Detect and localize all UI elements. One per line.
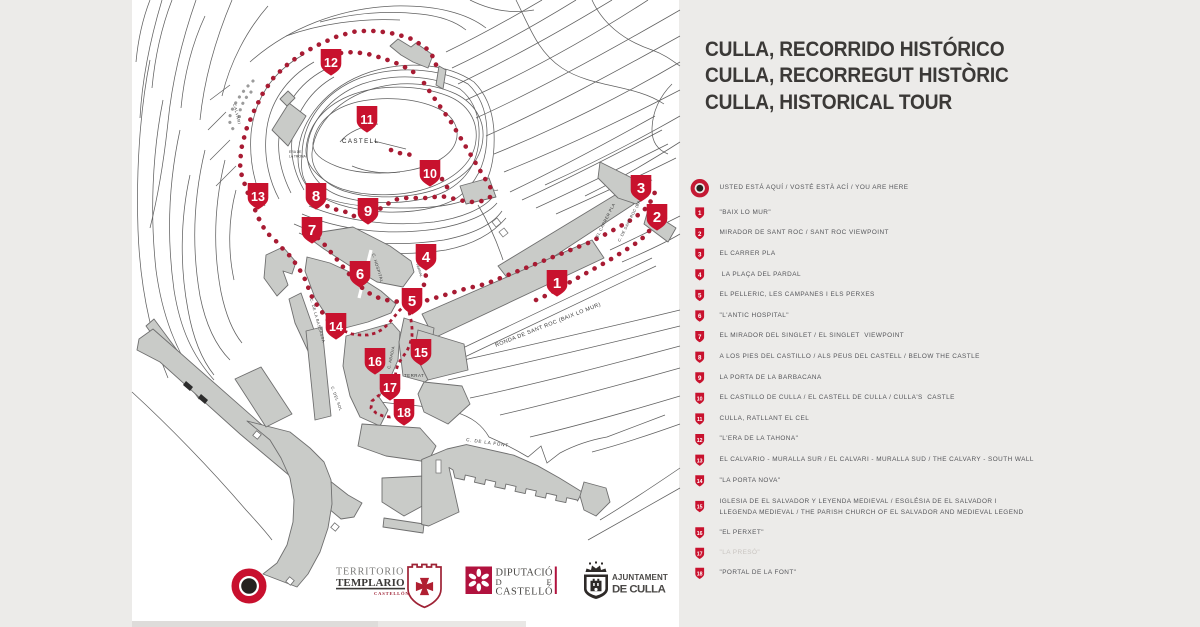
svg-text:17: 17 xyxy=(383,381,397,395)
svg-text:1: 1 xyxy=(698,210,702,217)
svg-text:7: 7 xyxy=(698,334,702,341)
svg-text:11: 11 xyxy=(360,113,373,127)
svg-text:13: 13 xyxy=(697,458,703,464)
svg-text:16: 16 xyxy=(697,531,703,537)
svg-text:3: 3 xyxy=(698,251,702,258)
svg-text:TEMPLARIO: TEMPLARIO xyxy=(336,577,405,589)
svg-text:18: 18 xyxy=(397,406,411,420)
svg-text:6: 6 xyxy=(698,313,702,320)
svg-text:6: 6 xyxy=(356,266,364,283)
svg-text:CASTELLÓN: CASTELLÓN xyxy=(374,591,410,596)
svg-text:13: 13 xyxy=(251,190,265,204)
svg-text:15: 15 xyxy=(414,346,428,360)
svg-text:9: 9 xyxy=(698,375,702,382)
svg-text:TERRAT: TERRAT xyxy=(404,373,424,378)
svg-text:D: D xyxy=(496,577,502,587)
svg-text:7: 7 xyxy=(308,222,316,239)
svg-text:CASTELL: CASTELL xyxy=(342,138,379,145)
svg-text:CALVARI: CALVARI xyxy=(232,103,242,125)
svg-text:14: 14 xyxy=(329,320,343,334)
svg-text:9: 9 xyxy=(364,203,372,220)
svg-text:DIPUTACIÓ: DIPUTACIÓ xyxy=(496,567,553,579)
svg-text:ERA DE: ERA DE xyxy=(289,150,302,154)
svg-text:3: 3 xyxy=(637,180,645,197)
svg-text:1: 1 xyxy=(553,275,561,292)
svg-text:5: 5 xyxy=(408,293,416,310)
svg-text:12: 12 xyxy=(324,56,338,70)
svg-text:10: 10 xyxy=(423,167,437,181)
svg-text:8: 8 xyxy=(698,354,702,361)
svg-text:15: 15 xyxy=(697,505,703,511)
svg-text:11: 11 xyxy=(697,417,703,423)
svg-text:8: 8 xyxy=(312,188,320,205)
svg-text:10: 10 xyxy=(697,397,703,403)
svg-text:2: 2 xyxy=(653,209,661,226)
svg-text:5: 5 xyxy=(698,293,702,300)
svg-text:12: 12 xyxy=(697,438,703,444)
svg-text:C. DEL SOL: C. DEL SOL xyxy=(330,386,344,412)
svg-text:E: E xyxy=(547,577,552,587)
svg-text:4: 4 xyxy=(698,272,702,279)
svg-text:4: 4 xyxy=(422,249,431,266)
svg-text:CASTELLÓ: CASTELLÓ xyxy=(496,586,553,598)
svg-text:14: 14 xyxy=(697,479,703,485)
svg-text:LA TRONA: LA TRONA xyxy=(289,155,306,159)
svg-text:18: 18 xyxy=(697,572,703,578)
svg-text:2: 2 xyxy=(698,231,702,238)
svg-text:DE CULLA: DE CULLA xyxy=(612,583,666,595)
svg-text:17: 17 xyxy=(697,552,703,558)
svg-text:TERRITORIO: TERRITORIO xyxy=(336,567,404,578)
svg-text:16: 16 xyxy=(368,355,382,369)
svg-text:AJUNTAMENT: AJUNTAMENT xyxy=(612,573,668,582)
